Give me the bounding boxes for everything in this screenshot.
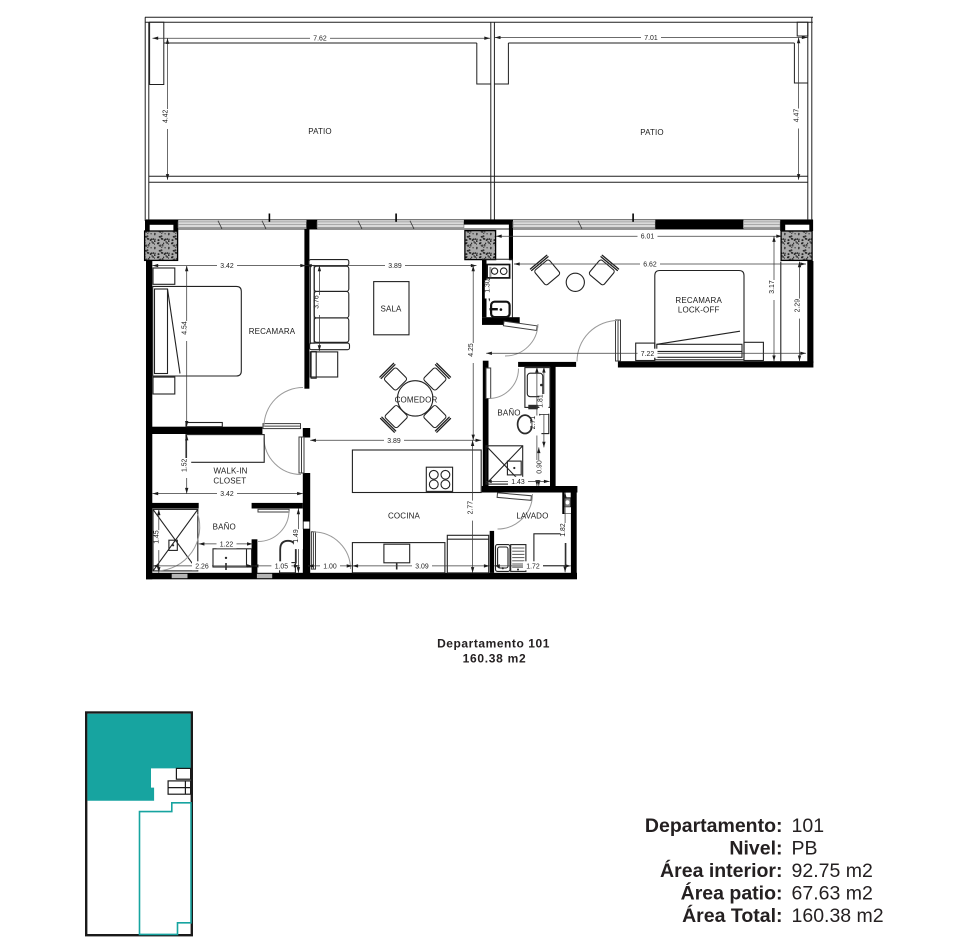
svg-text:BAÑO: BAÑO: [213, 523, 236, 532]
svg-text:Área Total:: Área Total:: [682, 904, 782, 927]
svg-text:1.30: 1.30: [484, 279, 491, 293]
svg-text:LAVADO: LAVADO: [516, 512, 548, 521]
svg-text:Departamento 101: Departamento 101: [437, 637, 550, 651]
svg-text:3.76: 3.76: [313, 295, 320, 309]
svg-text:3.89: 3.89: [388, 263, 402, 270]
svg-text:COCINA: COCINA: [388, 512, 421, 521]
svg-text:BAÑO: BAÑO: [497, 409, 520, 418]
svg-text:1.81: 1.81: [538, 394, 545, 408]
svg-text:3.42: 3.42: [220, 263, 234, 270]
svg-text:7.22: 7.22: [641, 351, 655, 358]
svg-text:3.89: 3.89: [387, 438, 401, 445]
svg-text:PB: PB: [792, 837, 818, 859]
svg-text:SALA: SALA: [380, 305, 402, 314]
svg-text:2.29: 2.29: [794, 299, 801, 313]
svg-text:1.45: 1.45: [154, 530, 161, 544]
svg-text:4.47: 4.47: [793, 109, 800, 123]
svg-text:2.71: 2.71: [530, 416, 537, 430]
svg-text:67.63 m2: 67.63 m2: [792, 882, 873, 904]
svg-text:6.01: 6.01: [641, 234, 655, 241]
svg-text:1.00: 1.00: [323, 563, 337, 570]
svg-text:160.38 m2: 160.38 m2: [463, 652, 527, 666]
svg-text:RECAMARA: RECAMARA: [249, 327, 296, 336]
svg-text:PATIO: PATIO: [308, 127, 332, 136]
svg-text:101: 101: [792, 815, 825, 837]
svg-text:LOCK-OFF: LOCK-OFF: [678, 306, 720, 315]
svg-text:3.09: 3.09: [415, 563, 429, 570]
svg-text:7.01: 7.01: [644, 35, 658, 42]
svg-text:Departamento:: Departamento:: [645, 815, 783, 837]
svg-text:1.72: 1.72: [526, 563, 540, 570]
svg-text:1.52: 1.52: [182, 458, 189, 472]
svg-text:1.82: 1.82: [560, 523, 567, 537]
svg-text:3.42: 3.42: [220, 491, 234, 498]
svg-text:1.43: 1.43: [511, 479, 525, 486]
svg-text:1.49: 1.49: [293, 529, 300, 543]
svg-text:CLOSET: CLOSET: [213, 477, 246, 486]
svg-text:4.25: 4.25: [468, 343, 475, 357]
svg-text:Nivel:: Nivel:: [729, 837, 782, 859]
svg-text:160.38 m2: 160.38 m2: [792, 905, 884, 927]
svg-text:0.90: 0.90: [537, 460, 544, 474]
svg-text:2.26: 2.26: [195, 563, 209, 570]
svg-text:1.22: 1.22: [220, 541, 234, 548]
svg-text:Área interior:: Área interior:: [660, 859, 782, 882]
svg-text:3.17: 3.17: [769, 280, 776, 294]
svg-text:4.54: 4.54: [182, 321, 189, 335]
svg-text:7.62: 7.62: [313, 36, 327, 43]
svg-text:RECAMARA: RECAMARA: [675, 296, 722, 305]
svg-text:PATIO: PATIO: [640, 128, 664, 137]
svg-text:COMEDOR: COMEDOR: [395, 396, 438, 405]
svg-text:Área patio:: Área patio:: [681, 881, 783, 904]
svg-text:1.05: 1.05: [275, 563, 289, 570]
svg-text:6.62: 6.62: [643, 262, 657, 269]
svg-text:2.77: 2.77: [468, 501, 475, 515]
svg-text:4.42: 4.42: [162, 109, 169, 123]
svg-text:92.75 m2: 92.75 m2: [792, 860, 873, 882]
svg-text:WALK-IN: WALK-IN: [213, 466, 247, 475]
